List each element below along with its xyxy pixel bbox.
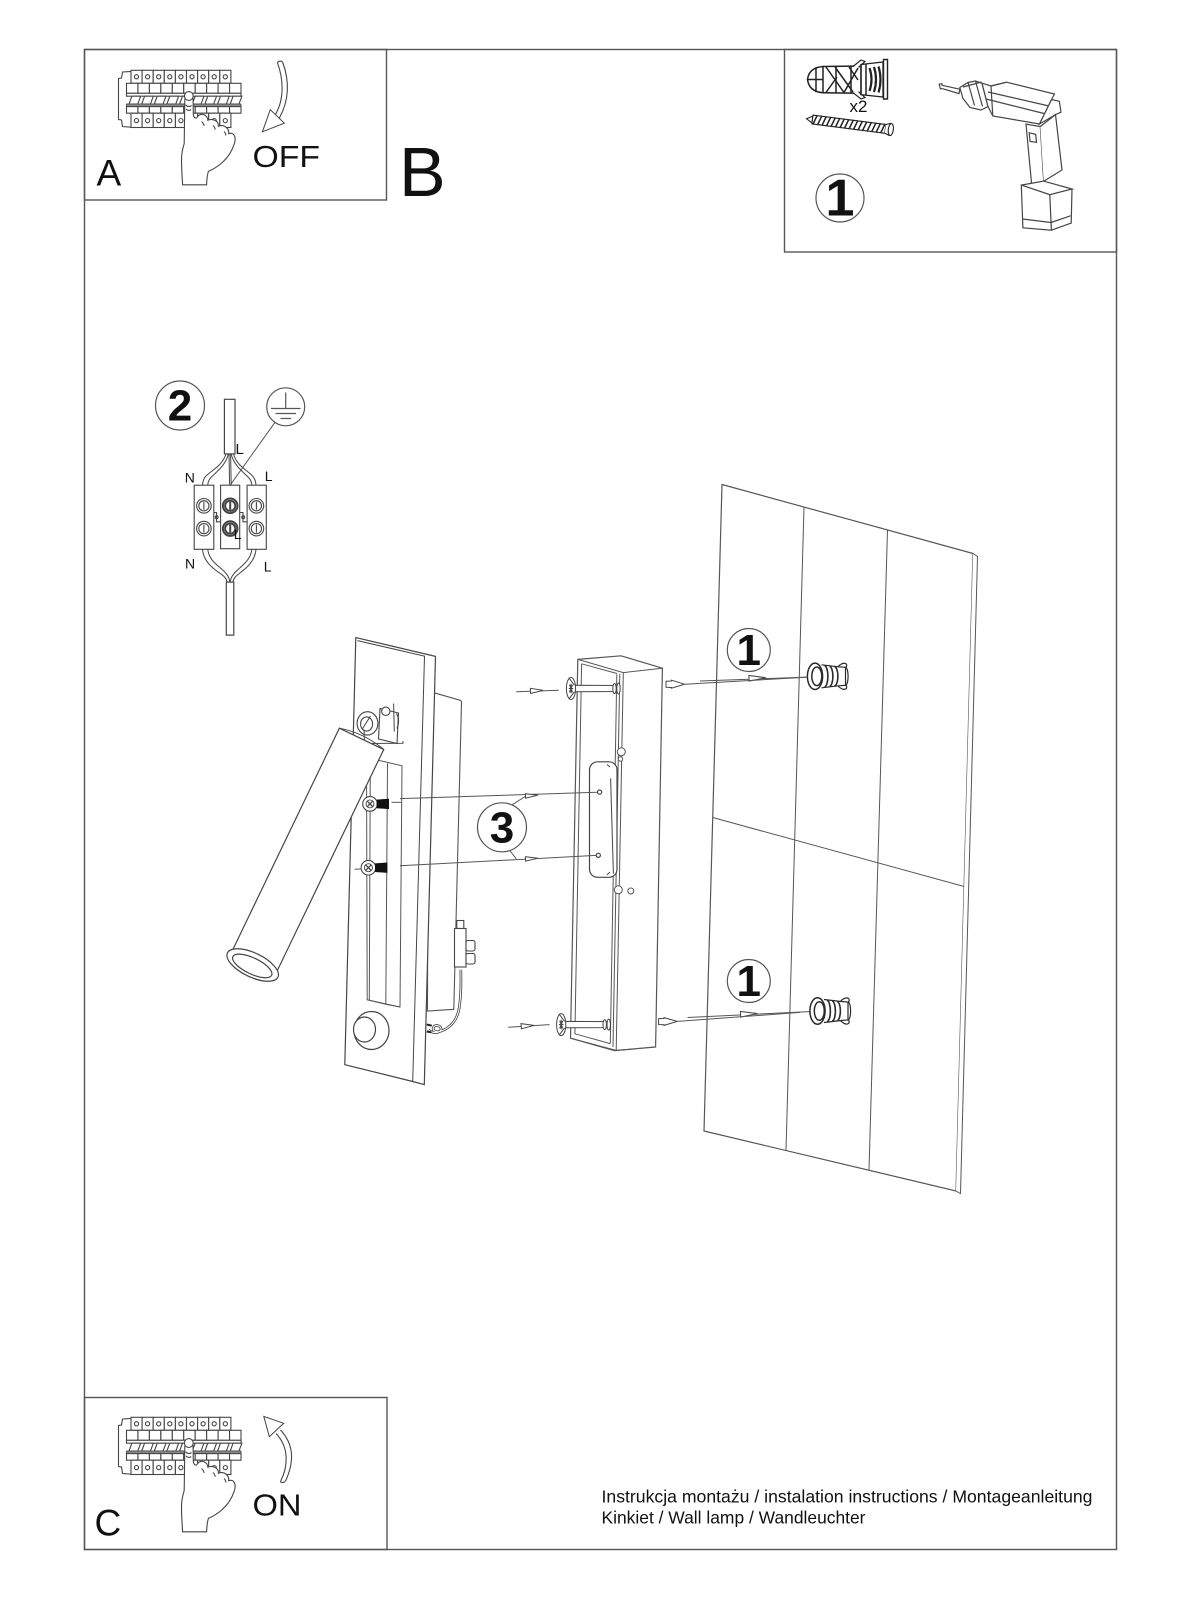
svg-text:N: N	[185, 469, 195, 485]
svg-text:L: L	[264, 559, 272, 575]
svg-text:L: L	[265, 468, 273, 484]
svg-text:C: C	[95, 1503, 122, 1544]
svg-text:2: 2	[168, 382, 192, 431]
svg-text:1: 1	[737, 957, 761, 1006]
svg-text:L: L	[234, 526, 242, 542]
svg-text:N: N	[185, 555, 195, 571]
svg-text:OFF: OFF	[253, 139, 321, 174]
svg-text:ON: ON	[253, 1488, 302, 1523]
svg-text:A: A	[97, 153, 122, 194]
svg-text:Instrukcja montażu / instalati: Instrukcja montażu / instalation instruc…	[602, 1487, 1093, 1507]
svg-text:1: 1	[826, 170, 855, 228]
svg-text:1: 1	[737, 626, 761, 675]
svg-text:x2: x2	[850, 97, 868, 116]
svg-text:B: B	[399, 133, 446, 211]
svg-text:Kinkiet / Wall lamp / Wandleuc: Kinkiet / Wall lamp / Wandleuchter	[602, 1508, 866, 1528]
svg-text:3: 3	[490, 803, 514, 852]
svg-text:L: L	[236, 441, 244, 458]
